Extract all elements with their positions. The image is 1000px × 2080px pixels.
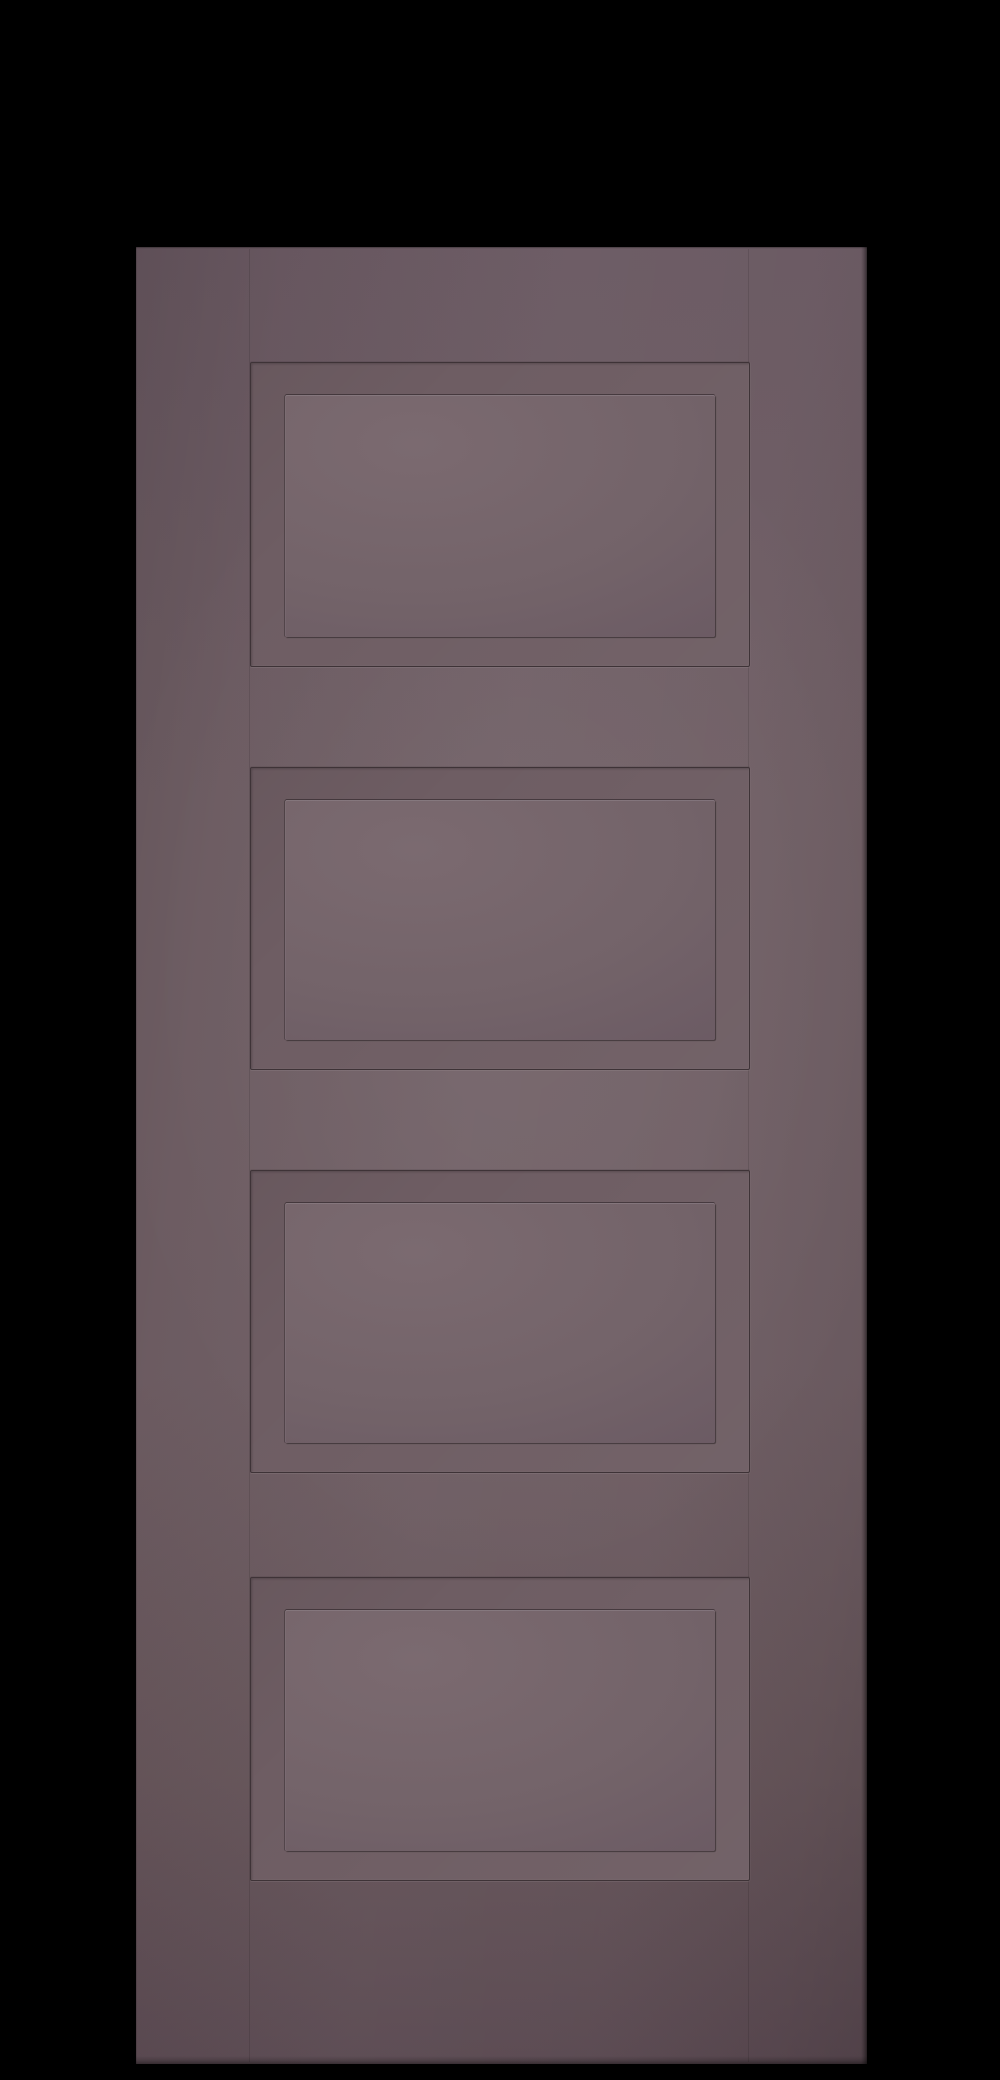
panel-groove-frame (250, 1170, 750, 1473)
door-panel-2 (250, 767, 750, 1070)
panel-groove-frame (250, 362, 750, 667)
door-panel-4 (250, 1577, 750, 1881)
door (136, 247, 867, 2064)
door-edge-bottom (136, 2056, 867, 2064)
scene-background (0, 0, 1000, 2080)
door-edge-right (861, 247, 867, 2064)
panel-groove-frame (250, 767, 750, 1070)
panel-raised-field (285, 1203, 715, 1443)
door-panel-3 (250, 1170, 750, 1473)
panel-groove-frame (250, 1577, 750, 1881)
panel-raised-field (285, 1610, 715, 1851)
panel-raised-field (285, 800, 715, 1040)
door-panel-1 (250, 362, 750, 667)
panel-raised-field (285, 395, 715, 637)
